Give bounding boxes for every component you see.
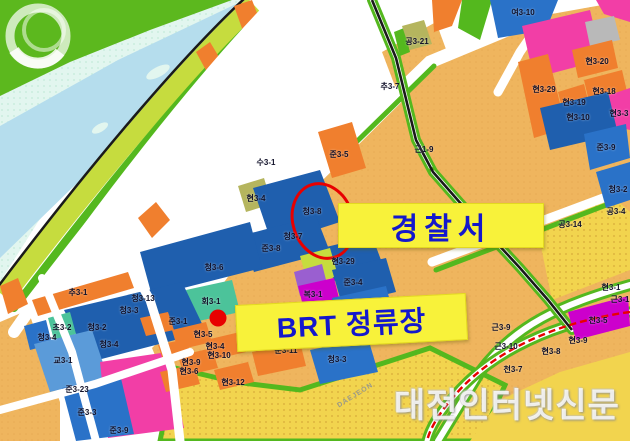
parcel-label: 준3-8	[262, 245, 281, 253]
parcel-label: 추3-7	[381, 83, 400, 91]
parcel-label: 교3-1	[54, 357, 73, 365]
parcel-label: 준3-4	[344, 279, 363, 287]
parcel-label: 천3-5	[589, 317, 608, 325]
parcel-label: 현3-12	[221, 379, 244, 387]
parcel-label: 천3-7	[504, 366, 523, 374]
parcel-label: 현3-29	[331, 258, 354, 266]
parcel-label: 현3-4	[206, 343, 225, 351]
parcel-label: 준3-23	[65, 386, 88, 394]
parcel-label: 현3-20	[585, 58, 608, 66]
parcel-label: 현3-6	[180, 368, 199, 376]
parcel-label: 준3-3	[78, 409, 97, 417]
parcel-label: 현3-10	[207, 352, 230, 360]
parcel-label: 공3-14	[558, 221, 581, 229]
parcel-label: 현3-18	[592, 88, 615, 96]
parcel-label: 현3-5	[194, 331, 213, 339]
parcel-label: 청3-3	[120, 307, 139, 315]
parcel-label: 현3-9	[569, 337, 588, 345]
parcel-label: 현3-10	[566, 114, 589, 122]
parcel-label: 복3-1	[304, 291, 323, 299]
parcel-label: 근3-10	[494, 343, 517, 351]
parcel-label: 준3-1	[169, 318, 188, 326]
parcel-label: 추3-1	[69, 289, 88, 297]
parcel-label: 현3-29	[532, 86, 555, 94]
parcel-label: 청3-3	[328, 356, 347, 364]
parcel-label: 준3-9	[597, 144, 616, 152]
parcel-label: 현3-3	[610, 110, 629, 118]
parcel-label: 회3-1	[202, 298, 221, 306]
parcel-label: 초3-2	[53, 324, 72, 332]
parcel-label: 현3-9	[182, 359, 201, 367]
parcel-label: 청3-6	[205, 264, 224, 272]
parcel-label: 현3-8	[542, 348, 561, 356]
parcel-label: 청3-8	[303, 208, 322, 216]
parcel-label: 청3-13	[131, 295, 154, 303]
parcel-label: 근3-9	[492, 324, 511, 332]
parcel-label: 청3-4	[38, 334, 57, 342]
zoning-map: 여3-10공3-21추3-7현3-20현3-29현3-18현3-19현3-10현…	[0, 0, 630, 441]
parcel-label: 준3-5	[330, 151, 349, 159]
parcel-label: 근1-9	[415, 146, 434, 154]
parcel-label: 청3-2	[609, 186, 628, 194]
parcel-label: 현3-19	[562, 99, 585, 107]
parcel-label: 청3-2	[88, 324, 107, 332]
parcel-label: 준3-9	[110, 427, 129, 435]
parcel-label: 여3-10	[511, 9, 534, 17]
parcel-label: 현3-1	[602, 284, 621, 292]
parcel-label: 공3-4	[607, 208, 626, 216]
parcel-label: 수3-1	[257, 159, 276, 167]
parcel-label: 공3-21	[405, 38, 428, 46]
police-station-callout: 경찰서	[338, 203, 544, 248]
parcel-label: 근3-1	[611, 296, 630, 304]
parcel-label: 현3-4	[247, 195, 266, 203]
parcel-label: 청3-7	[284, 233, 303, 241]
parcel-label: 청3-4	[100, 341, 119, 349]
